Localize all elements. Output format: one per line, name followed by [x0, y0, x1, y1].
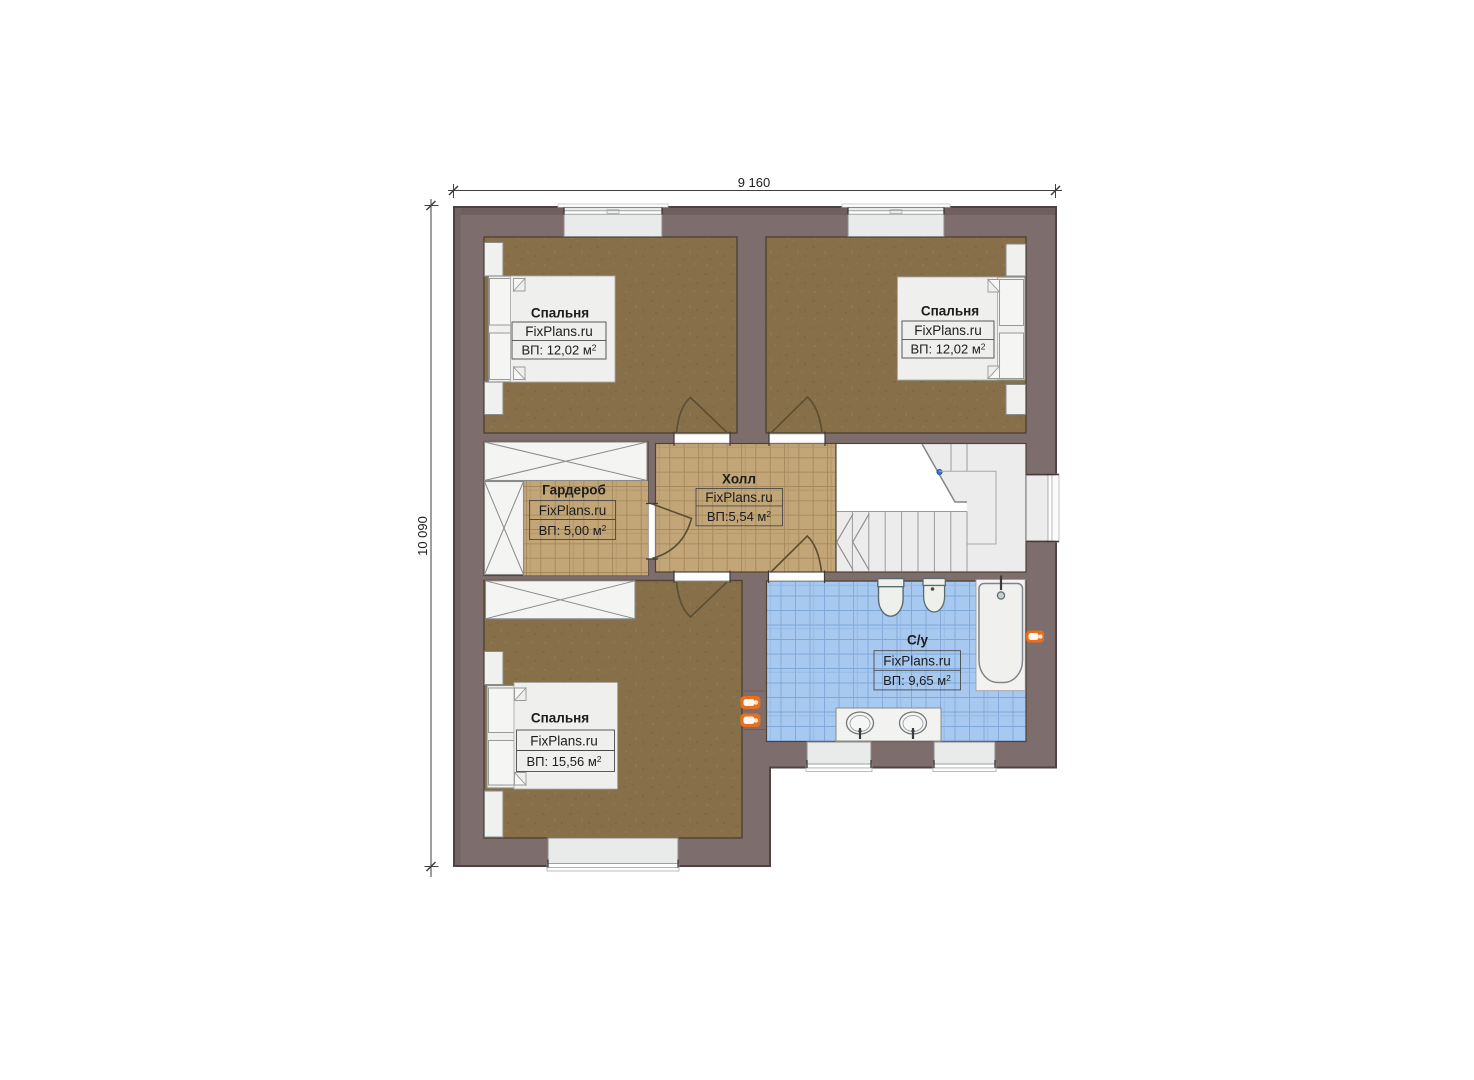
- svg-text:FixPlans.ru: FixPlans.ru: [539, 503, 607, 518]
- svg-text:С/у: С/у: [907, 633, 929, 648]
- svg-text:Гардероб: Гардероб: [542, 483, 606, 498]
- svg-text:ВП: 12,02 м2: ВП: 12,02 м2: [910, 342, 985, 357]
- svg-text:ВП: 5,00 м2: ВП: 5,00 м2: [539, 523, 607, 538]
- svg-text:ВП:5,54 м2: ВП:5,54 м2: [707, 509, 771, 524]
- svg-text:FixPlans.ru: FixPlans.ru: [883, 653, 951, 668]
- svg-text:ВП: 9,65 м2: ВП: 9,65 м2: [883, 673, 951, 688]
- svg-text:ВП: 12,02 м2: ВП: 12,02 м2: [521, 343, 596, 358]
- svg-text:FixPlans.ru: FixPlans.ru: [914, 323, 982, 338]
- svg-text:10 090: 10 090: [415, 516, 430, 556]
- svg-text:Спальня: Спальня: [531, 306, 589, 321]
- svg-text:Спальня: Спальня: [921, 304, 979, 319]
- svg-text:9 160: 9 160: [738, 175, 771, 190]
- svg-text:ВП: 15,56 м2: ВП: 15,56 м2: [526, 754, 601, 769]
- svg-text:FixPlans.ru: FixPlans.ru: [530, 733, 598, 748]
- svg-text:FixPlans.ru: FixPlans.ru: [525, 324, 593, 339]
- svg-text:FixPlans.ru: FixPlans.ru: [705, 490, 773, 505]
- svg-text:Холл: Холл: [722, 472, 756, 487]
- svg-text:Спальня: Спальня: [531, 711, 589, 726]
